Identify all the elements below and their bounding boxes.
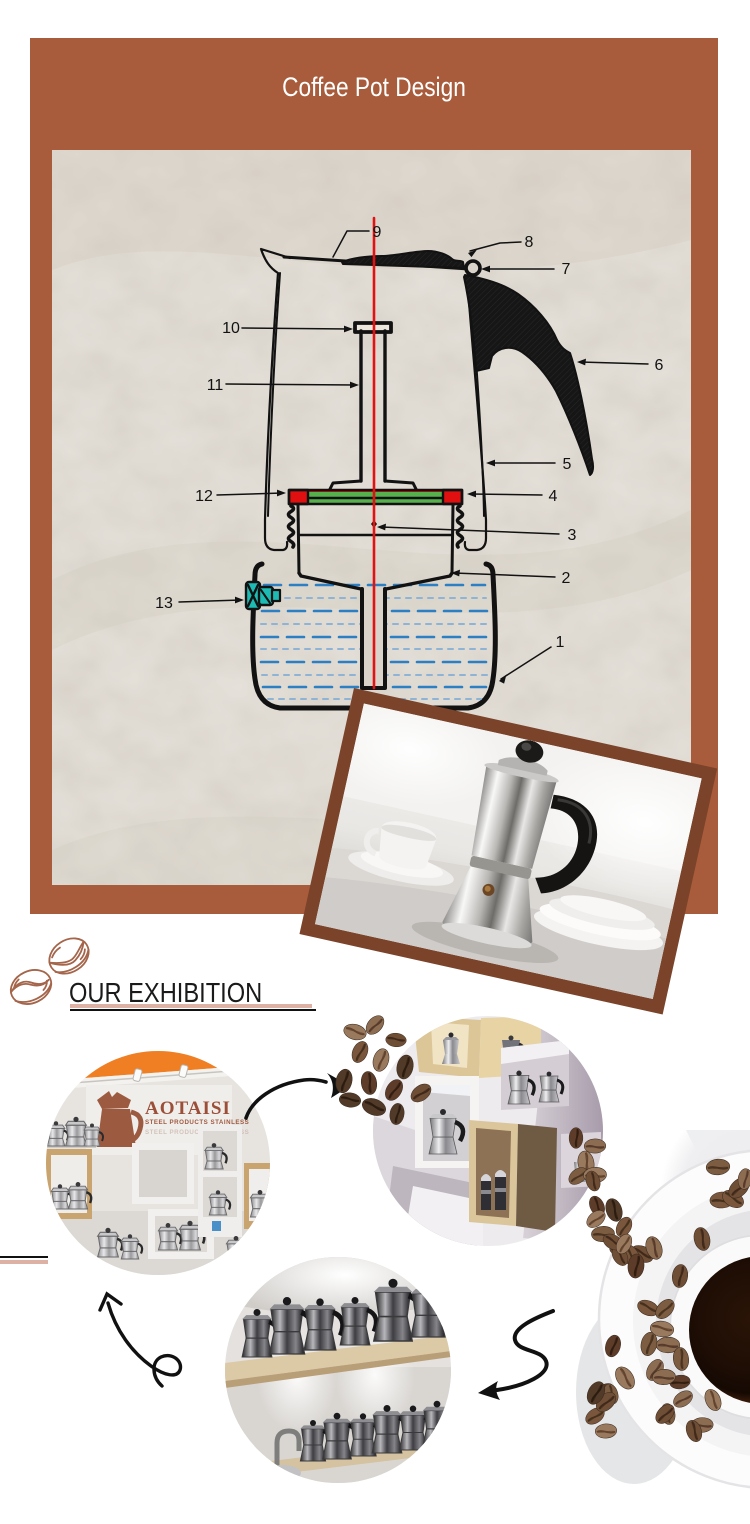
svg-text:1: 1 [556, 634, 565, 651]
svg-text:4: 4 [549, 488, 558, 505]
svg-text:6: 6 [655, 357, 664, 374]
svg-text:10: 10 [222, 320, 240, 337]
svg-text:12: 12 [195, 488, 213, 505]
svg-text:5: 5 [563, 456, 572, 473]
svg-text:9: 9 [373, 224, 382, 241]
svg-text:3: 3 [568, 527, 577, 544]
svg-text:8: 8 [525, 234, 534, 251]
svg-text:2: 2 [562, 570, 571, 587]
svg-text:13: 13 [155, 595, 173, 612]
svg-text:7: 7 [562, 261, 571, 278]
svg-text:11: 11 [207, 377, 224, 394]
